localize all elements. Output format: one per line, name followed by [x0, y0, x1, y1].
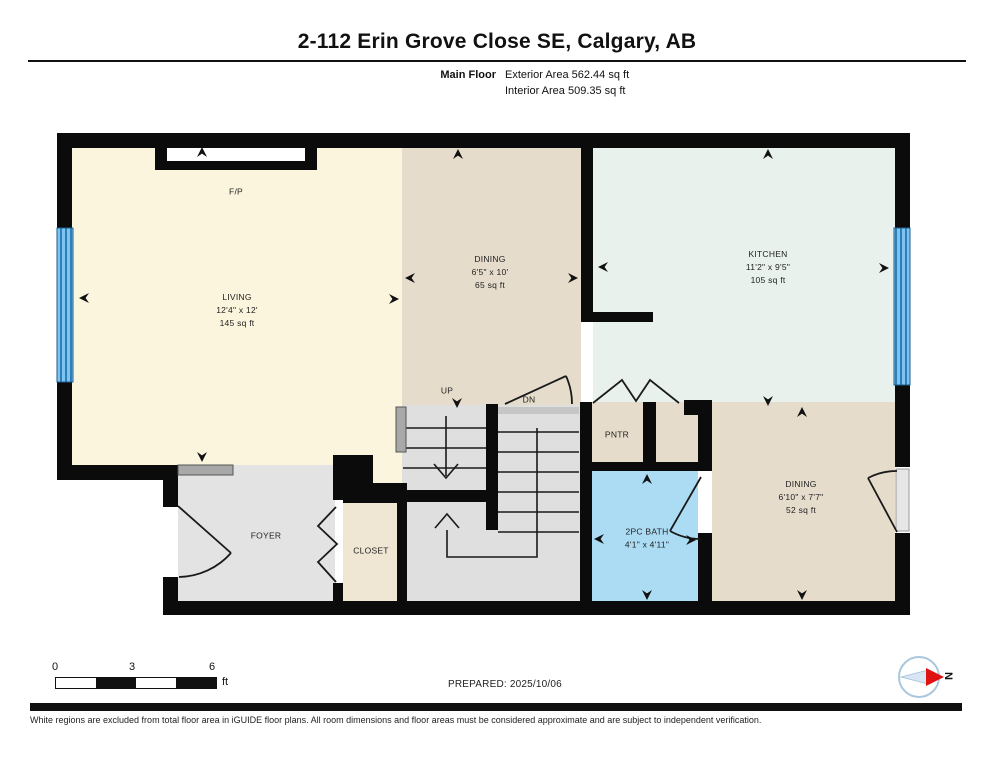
pantry-label: PNTR: [605, 429, 629, 442]
kitchen-floor: [593, 148, 895, 402]
dining-main-label: DINING6'5" x 10'65 sq ft: [472, 253, 509, 291]
dining-nook-label: DINING6'10" x 7'7"52 sq ft: [779, 478, 824, 516]
scale-bar: [55, 677, 217, 689]
floor-plan-page: 2-112 Erin Grove Close SE, Calgary, AB M…: [0, 0, 994, 768]
floor-plan-drawing: [0, 0, 994, 768]
stairs-up-label: UP: [441, 385, 453, 398]
scale-tick-6: 6: [209, 661, 215, 673]
scale-unit-label: ft: [222, 676, 228, 688]
scale-tick-3: 3: [129, 661, 135, 673]
stair-landing: [498, 407, 579, 414]
kitchen-window: [894, 228, 910, 385]
footer-divider: [30, 703, 962, 711]
scale-segment: [56, 678, 96, 688]
back-door-slab: [896, 469, 909, 531]
fireplace-alcove: [167, 148, 305, 161]
room-floors: [72, 148, 895, 601]
living-floor: [373, 465, 402, 483]
disclaimer-text: White regions are excluded from total fl…: [30, 715, 964, 725]
kitchen-label: KITCHEN11'2" x 9'5"105 sq ft: [746, 248, 790, 286]
scale-segment: [136, 678, 176, 688]
compass-north-label: N: [942, 672, 954, 680]
prepared-date: PREPARED: 2025/10/06: [448, 679, 562, 690]
foyer-label: FOYER: [251, 530, 282, 543]
foyer-railing: [178, 465, 233, 475]
living-window: [57, 228, 73, 382]
bath-label: 2PC BATH4'1" x 4'11": [625, 525, 669, 551]
stairs-down-label: DN: [523, 394, 536, 407]
scale-segment: [96, 678, 136, 688]
scale-tick-0: 0: [52, 661, 58, 673]
stair-stub-wall: [396, 407, 406, 452]
living-label: LIVING12'4" x 12'145 sq ft: [216, 291, 258, 329]
fireplace-label: F/P: [229, 186, 243, 199]
compass-icon: [899, 657, 944, 697]
closet-label: CLOSET: [353, 545, 389, 558]
scale-segment: [176, 678, 216, 688]
